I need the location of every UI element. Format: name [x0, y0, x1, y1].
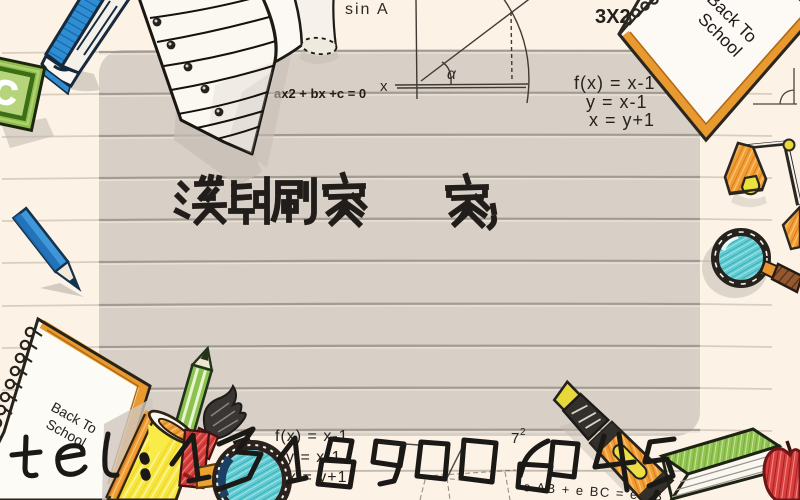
svg-text:y = x-1: y = x-1 [586, 92, 648, 112]
svg-text:sin A: sin A [345, 1, 390, 18]
svg-text:x = y+1: x = y+1 [589, 110, 655, 130]
svg-text:f(x) = x-1: f(x) = x-1 [574, 73, 656, 93]
svg-text:2: 2 [520, 427, 526, 438]
svg-text:ax2 + bx +c = 0: ax2 + bx +c = 0 [274, 86, 366, 101]
svg-text:α: α [447, 66, 457, 83]
svg-text:7: 7 [511, 430, 519, 447]
svg-text:f(x) = x-1: f(x) = x-1 [275, 428, 349, 445]
svg-text:x: x [380, 78, 388, 95]
